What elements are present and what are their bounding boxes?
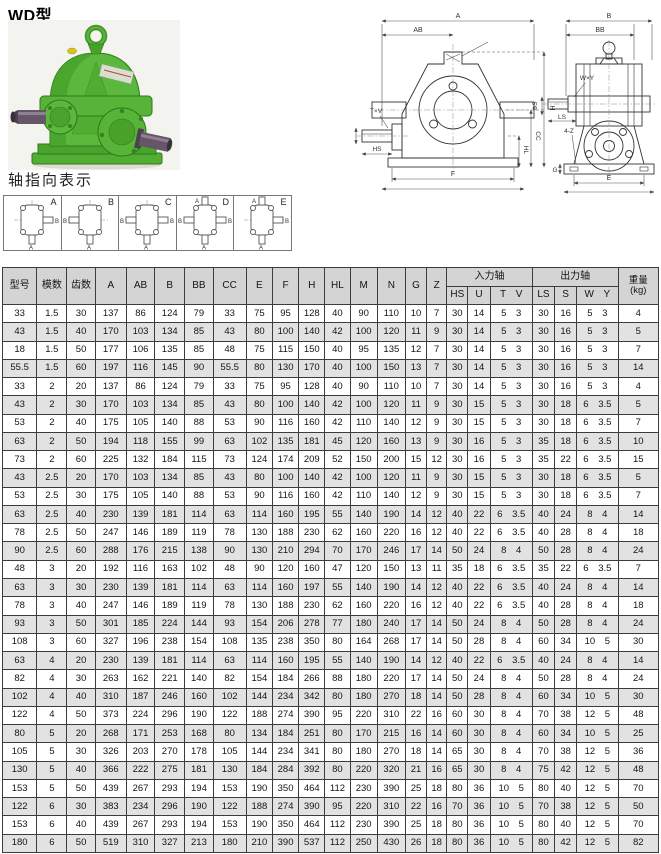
table-cell: 22 [468,597,490,615]
table-cell: 5 3 [490,487,532,505]
table-cell: 40 [532,524,554,542]
table-cell: 38 [555,798,577,816]
table-cell: 36 [468,816,490,834]
svg-text:A: A [202,246,206,251]
shaft-diagram-e: E A B A [233,195,292,251]
table-cell: 102 [3,688,37,706]
col-header-N: N [377,268,405,305]
table-cell: 80 [246,323,272,341]
table-cell: 73 [213,451,246,469]
table-cell: 73 [3,451,37,469]
table-cell: 50 [532,542,554,560]
col-header-BB: BB [185,268,213,305]
table-cell: 188 [246,706,272,724]
table-cell: 80 [246,396,272,414]
table-cell: 194 [185,779,213,797]
table-cell: 5 3 [577,341,618,359]
table-cell: 2 [37,414,67,432]
svg-text:B: B [285,219,289,225]
table-cell: 63 [3,432,37,450]
shaft-diagram-strip: A B A B [3,195,292,251]
table-cell: 2.5 [37,505,67,523]
table-cell: 43 [3,323,37,341]
table-cell: 184 [272,725,298,743]
table-cell: 35 [532,432,554,450]
table-cell: 85 [185,341,213,359]
dim-label-B: B [607,13,612,20]
side-view-body [548,42,654,174]
table-cell: 100 [350,396,377,414]
table-cell: 1.5 [37,305,67,323]
table-cell: 11 [427,560,447,578]
table-cell: 70 [618,816,658,834]
table-cell: 42 [555,834,577,852]
table-cell: 28 [555,524,577,542]
table-cell: 14 [618,578,658,596]
table-cell: 1.5 [37,341,67,359]
table-cell: 90 [3,542,37,560]
table-cell: 270 [377,743,405,761]
col-header-A: A [95,268,126,305]
table-cell: 16 [555,359,577,377]
table-cell: 140 [299,469,325,487]
table-cell: 38 [555,706,577,724]
col-header-weight: 重量 (kg) [618,268,658,305]
table-cell: 77 [325,615,350,633]
table-cell: 42 [325,414,350,432]
table-cell: 8 4 [490,743,532,761]
table-cell: 30 [468,725,490,743]
col-header-HS: HS [447,287,468,305]
table-cell: 140 [185,670,213,688]
table-cell: 119 [185,524,213,542]
table-cell: 48 [213,341,246,359]
svg-text:A: A [29,246,33,251]
table-cell: 30 [447,451,468,469]
table-cell: 190 [246,816,272,834]
table-cell: 390 [377,779,405,797]
table-cell: 14 [405,505,426,523]
table-cell: 6 [37,816,67,834]
table-cell: 102 [213,688,246,706]
table-cell: 95 [325,798,350,816]
table-cell: 274 [272,706,298,724]
table-cell: 2.5 [37,469,67,487]
table-cell: 160 [350,524,377,542]
table-cell: 350 [272,816,298,834]
table-cell: 6 3.5 [577,487,618,505]
table-cell: 35 [532,451,554,469]
table-cell: 15 [468,469,490,487]
table-cell: 50 [532,670,554,688]
table-cell: 180 [350,688,377,706]
table-cell: 9 [427,323,447,341]
table-cell: 154 [246,615,272,633]
table-cell: 153 [3,779,37,797]
table-cell: 220 [377,597,405,615]
table-cell: 28 [555,670,577,688]
diagram-letter: A [50,197,56,207]
table-cell: 24 [555,652,577,670]
table-cell: 17 [405,670,426,688]
table-cell: 6 3.5 [577,414,618,432]
col-header-B: B [155,268,185,305]
table-cell: 22 [468,578,490,596]
shaft-diagram-c: C B B A [118,195,177,251]
table-cell: 40 [325,378,350,396]
table-row: 1536404392672931941531903504641122303902… [3,816,659,834]
table-cell: 195 [299,505,325,523]
table-cell: 103 [126,396,154,414]
table-cell: 194 [95,432,126,450]
table-cell: 140 [350,505,377,523]
table-cell: 36 [468,779,490,797]
table-cell: 215 [155,542,185,560]
table-cell: 80 [3,725,37,743]
table-cell: 16 [427,706,447,724]
table-cell: 40 [325,305,350,323]
table-cell: 234 [272,688,298,706]
table-cell: 14 [468,378,490,396]
table-cell: 12 [405,414,426,432]
table-cell: 47 [325,560,350,578]
table-cell: 120 [350,432,377,450]
table-cell: 5 [37,761,67,779]
svg-text:B: B [228,219,232,225]
table-cell: 12 [427,652,447,670]
table-cell: 170 [95,323,126,341]
col-header-module: 模数 [37,268,67,305]
table-cell: 80 [447,834,468,852]
table-cell: 120 [350,560,377,578]
table-cell: 176 [126,542,154,560]
table-cell: 154 [185,633,213,651]
table-cell: 80 [246,469,272,487]
table-cell: 296 [155,798,185,816]
table-cell: 210 [272,542,298,560]
table-cell: 40 [67,323,95,341]
table-cell: 40 [67,761,95,779]
table-cell: 140 [350,652,377,670]
table-cell: 162 [126,670,154,688]
table-cell: 13 [405,359,426,377]
table-cell: 114 [185,652,213,670]
table-cell: 8 4 [490,761,532,779]
table-cell: 5 [618,469,658,487]
table-cell: 8 4 [577,524,618,542]
table-cell: 35 [447,560,468,578]
table-cell: 30 [532,487,554,505]
table-cell: 80 [325,725,350,743]
table-cell: 160 [350,597,377,615]
table-cell: 40 [532,578,554,596]
table-cell: 190 [246,779,272,797]
table-cell: 30 [447,305,468,323]
table-cell: 63 [213,432,246,450]
table-cell: 34 [555,688,577,706]
shaft-diagram-d: D A B B A [176,195,235,251]
table-cell: 174 [272,451,298,469]
table-cell: 18 [405,688,426,706]
svg-text:B: B [178,219,182,225]
table-cell: 326 [95,743,126,761]
table-cell: 168 [185,725,213,743]
table-cell: 145 [155,359,185,377]
table-cell: 220 [350,761,377,779]
table-row: 431.540170103134854380100140421001201193… [3,323,659,341]
table-cell: 18 [427,834,447,852]
table-cell: 88 [185,414,213,432]
table-cell: 5 3 [490,469,532,487]
table-cell: 10 5 [490,834,532,852]
table-cell: 150 [350,451,377,469]
table-cell: 12 [427,597,447,615]
table-cell: 130 [213,761,246,779]
svg-text:B: B [63,219,67,225]
table-cell: 5 3 [577,323,618,341]
table-cell: 40 [67,414,95,432]
table-cell: 63 [3,505,37,523]
table-cell: 310 [377,798,405,816]
table-cell: 153 [3,816,37,834]
table-cell: 100 [350,469,377,487]
table-row: 1806505193103272131802103905371122504302… [3,834,659,852]
shaft-direction-title: 轴指向表示 [8,169,93,190]
table-cell: 189 [155,524,185,542]
table-cell: 175 [95,487,126,505]
table-cell: 43 [213,469,246,487]
dim-label-PhiS: ΦS [533,102,539,111]
table-cell: 90 [350,305,377,323]
table-cell: 80 [447,816,468,834]
table-cell: 12 5 [577,798,618,816]
table-cell: 100 [272,323,298,341]
table-cell: 70 [532,743,554,761]
table-cell: 230 [299,597,325,615]
table-cell: 42 [325,323,350,341]
table-cell: 267 [126,779,154,797]
dim-label-HL: HL [522,146,529,155]
table-cell: 135 [246,633,272,651]
table-cell: 48 [618,761,658,779]
gearbox-base [32,144,162,164]
table-cell: 12 5 [577,706,618,724]
table-cell: 140 [377,414,405,432]
table-cell: 80 [325,633,350,651]
table-cell: 246 [377,542,405,560]
input-shaft-boss [43,100,77,134]
table-cell: 8 4 [577,505,618,523]
table-cell: 75 [246,305,272,323]
dimension-table: 型号 模数 齿数 A AB B BB CC E F H HL M N G Z 入… [2,267,659,853]
table-cell: 99 [185,432,213,450]
table-cell: 50 [67,706,95,724]
table-cell: 134 [246,725,272,743]
col-header-TV: T V [490,287,532,305]
table-cell: 33 [3,305,37,323]
table-cell: 342 [299,688,325,706]
table-cell: 30 [447,341,468,359]
svg-text:B: B [120,219,124,225]
table-cell: 464 [299,816,325,834]
table-cell: 22 [405,706,426,724]
table-cell: 139 [126,505,154,523]
table-cell: 10 [405,378,426,396]
table-cell: 170 [95,469,126,487]
table-cell: 238 [155,633,185,651]
table-cell: 464 [299,779,325,797]
table-cell: 10 5 [490,816,532,834]
table-cell: 144 [185,615,213,633]
table-cell: 62 [325,597,350,615]
col-header-AB: AB [126,268,154,305]
dim-label-F: F [451,171,455,178]
table-cell: 160 [377,432,405,450]
table-cell: 175 [95,414,126,432]
table-cell: 79 [185,305,213,323]
dim-label-CC: CC [534,131,541,141]
dim-label-BB: BB [595,27,605,34]
table-cell: 34 [555,633,577,651]
table-cell: 137 [95,378,126,396]
table-cell: 30 [532,469,554,487]
col-header-HL: HL [325,268,350,305]
table-cell: 7 [618,487,658,505]
table-cell: 122 [213,798,246,816]
table-cell: 12 5 [577,816,618,834]
table-cell: 22 [468,652,490,670]
table-cell: 63 [3,652,37,670]
svg-text:B: B [170,219,174,225]
table-cell: 124 [246,451,272,469]
table-cell: 132 [126,451,154,469]
catalog-page: WD型 [0,0,661,854]
table-cell: 16 [405,725,426,743]
table-cell: 266 [299,670,325,688]
table-cell: 30 [532,414,554,432]
table-cell: 60 [447,725,468,743]
product-photo [8,20,180,170]
table-cell: 28 [555,542,577,560]
table-row: 5324017510514088539011616042110140129301… [3,414,659,432]
table-row: 181.550177106135854875115150409513512730… [3,341,659,359]
table-cell: 8 4 [577,615,618,633]
table-row: 332201378612479337595128409011010730145 … [3,378,659,396]
table-cell: 327 [95,633,126,651]
table-cell: 50 [447,615,468,633]
table-cell: 18 [555,432,577,450]
table-cell: 180 [350,615,377,633]
table-cell: 10 5 [490,779,532,797]
table-cell: 86 [126,378,154,396]
table-cell: 7 [427,378,447,396]
table-cell: 12 [427,524,447,542]
table-cell: 230 [350,779,377,797]
technical-drawings: A AB T×V HS H CC HL F [338,8,660,194]
table-row: 55.51.5601971161459055.58013017040100150… [3,359,659,377]
table-cell: 164 [350,633,377,651]
table-cell: 110 [350,414,377,432]
table-cell: 247 [95,597,126,615]
table-cell: 3 [37,633,67,651]
col-header-WY: W Y [577,287,618,305]
weight-unit: (kg) [619,286,658,296]
table-cell: 4 [37,652,67,670]
table-cell: 116 [272,414,298,432]
table-cell: 4 [618,305,658,323]
side-view-dimensions [542,21,654,192]
table-cell: 30 [532,305,554,323]
table-cell: 270 [155,743,185,761]
table-cell: 366 [95,761,126,779]
table-cell: 24 [468,670,490,688]
table-cell: 1.5 [37,323,67,341]
table-row: 331.530137861247933759512840901101073014… [3,305,659,323]
table-cell: 6 3.5 [490,505,532,523]
table-cell: 5 3 [490,378,532,396]
table-cell: 390 [377,816,405,834]
table-cell: 383 [95,798,126,816]
table-row: 1305403662222751811301842843928022032021… [3,761,659,779]
table-cell: 5 [618,396,658,414]
table-cell: 13 [405,432,426,450]
table-cell: 30 [67,305,95,323]
table-cell: 5 3 [577,378,618,396]
table-cell: 194 [185,816,213,834]
table-cell: 36 [468,798,490,816]
table-cell: 267 [126,816,154,834]
table-cell: 7 [427,341,447,359]
table-cell: 197 [299,578,325,596]
table-cell: 350 [299,633,325,651]
table-cell: 5 3 [577,359,618,377]
table-cell: 250 [350,834,377,852]
table-cell: 140 [155,414,185,432]
table-cell: 62 [325,524,350,542]
table-cell: 10 [405,305,426,323]
table-row: 1535504392672931941531903504641122303902… [3,779,659,797]
table-cell: 60 [532,725,554,743]
table-cell: 95 [325,706,350,724]
input-shaft [11,110,47,124]
table-cell: 50 [447,688,468,706]
table-cell: 63 [3,578,37,596]
table-cell: 114 [246,652,272,670]
table-cell: 80 [325,688,350,706]
col-header-U: U [468,287,490,305]
table-cell: 16 [555,305,577,323]
table-cell: 28 [468,688,490,706]
diagram-letter: D [223,197,230,207]
table-cell: 181 [185,761,213,779]
table-cell: 30 [67,743,95,761]
table-cell: 18 [555,469,577,487]
table-cell: 5 3 [490,305,532,323]
table-cell: 190 [377,652,405,670]
table-cell: 230 [350,816,377,834]
table-cell: 341 [299,743,325,761]
table-cell: 4 [618,378,658,396]
table-cell: 22 [555,451,577,469]
table-cell: 114 [246,505,272,523]
table-cell: 43 [3,396,37,414]
table-cell: 268 [377,633,405,651]
table-cell: 78 [3,524,37,542]
table-cell: 5 3 [490,432,532,450]
table-cell: 50 [67,432,95,450]
table-cell: 30 [532,396,554,414]
table-cell: 213 [185,834,213,852]
